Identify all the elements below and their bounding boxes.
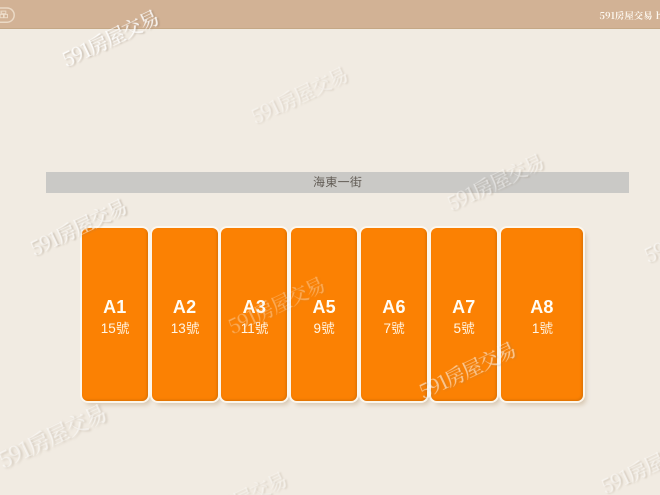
svg-text:1: 1 — [531, 321, 539, 336]
svg-text:15: 15 — [101, 321, 116, 336]
svg-text:11: 11 — [241, 321, 255, 336]
svg-text:13: 13 — [170, 321, 185, 336]
svg-text:5: 5 — [453, 321, 461, 336]
svg-text:7: 7 — [383, 321, 391, 336]
svg-text:9: 9 — [314, 321, 322, 336]
